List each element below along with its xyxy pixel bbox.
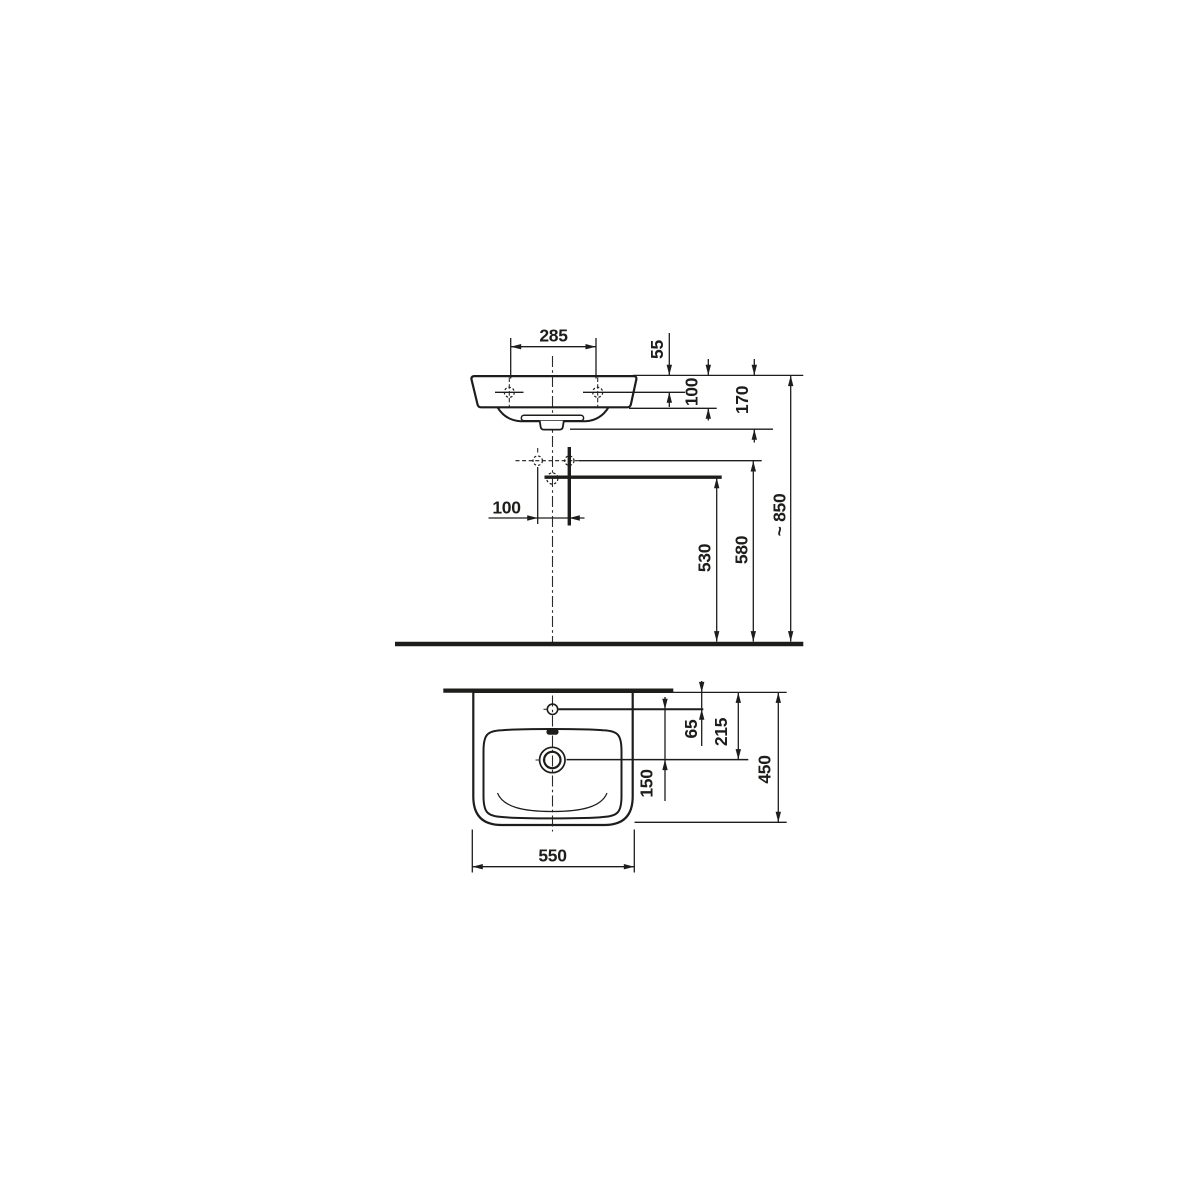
dim-apron-height: 100 (682, 359, 712, 421)
arrow-right (586, 344, 597, 349)
arrow-right (624, 864, 635, 869)
arrow-up (714, 478, 719, 489)
arrow-up (776, 692, 781, 703)
dim-wall-to-tap-hole: 65 (681, 681, 704, 746)
dim-overall-depth: 170 (732, 359, 757, 443)
arrow-up (752, 429, 757, 440)
arrow-down (714, 631, 719, 642)
arrow-left (511, 344, 522, 349)
arrow-down (662, 699, 667, 710)
dim-65-label: 65 (681, 719, 701, 738)
dim-tap-hole-spacing: 285 (511, 326, 596, 379)
dim-150-label: 150 (637, 769, 657, 798)
dim-530-label: 530 (695, 543, 715, 572)
bowl-bottom-plate (521, 415, 583, 421)
dim-floor-to-rim: ~ 850 (770, 376, 794, 642)
dim-580-label: 580 (732, 535, 752, 564)
arrow-down (736, 749, 741, 760)
dim-floor-to-drain: 530 (695, 477, 720, 641)
arrow-down (751, 631, 756, 642)
arrow-right (527, 515, 538, 520)
arrow-up (662, 760, 667, 771)
arrow-down (752, 365, 757, 376)
dim-100-mid-label: 100 (492, 498, 521, 518)
dim-tap-hole-to-drain: 150 (637, 697, 668, 801)
dim-rim-to-fixing-holes: 55 (647, 333, 672, 407)
dim-450-label: 450 (755, 755, 775, 784)
dim-floor-to-connections: 580 (732, 461, 757, 642)
arrow-up (751, 461, 756, 472)
arrow-down (788, 631, 793, 642)
dim-850-label: ~ 850 (770, 493, 790, 536)
fixing-hole-marker-left (495, 378, 524, 407)
drain-stub (540, 421, 564, 430)
dim-550-label: 550 (538, 846, 567, 866)
arrow-down (776, 812, 781, 823)
arrow-up (699, 709, 704, 720)
arrow-up (788, 376, 793, 387)
dim-215-label: 215 (711, 717, 731, 746)
dim-55-label: 55 (647, 340, 667, 359)
dim-basin-depth: 450 (755, 692, 782, 822)
arrow-down (667, 365, 672, 376)
arrow-up (667, 392, 672, 403)
arrow-left (472, 864, 483, 869)
arrow-down (706, 365, 711, 376)
technical-drawing-page: 285 55 100 170 (0, 0, 1200, 1200)
drain-marker (536, 747, 749, 772)
dim-basin-width: 550 (472, 830, 634, 873)
arrow-up (736, 692, 741, 703)
arrow-down (699, 682, 704, 693)
dim-285-label: 285 (539, 326, 568, 346)
top-view: 65 215 150 450 550 (443, 681, 786, 873)
wall-connections: 100 530 580 ~ 850 (395, 376, 803, 644)
arrow-up (706, 408, 711, 419)
dim-170-label: 170 (732, 385, 752, 414)
dim-100-right-label: 100 (682, 377, 702, 406)
overflow-slot (546, 729, 558, 735)
washbasin-dimension-drawing: 285 55 100 170 (0, 0, 1200, 1200)
dim-wall-to-drain: 215 (711, 692, 741, 759)
